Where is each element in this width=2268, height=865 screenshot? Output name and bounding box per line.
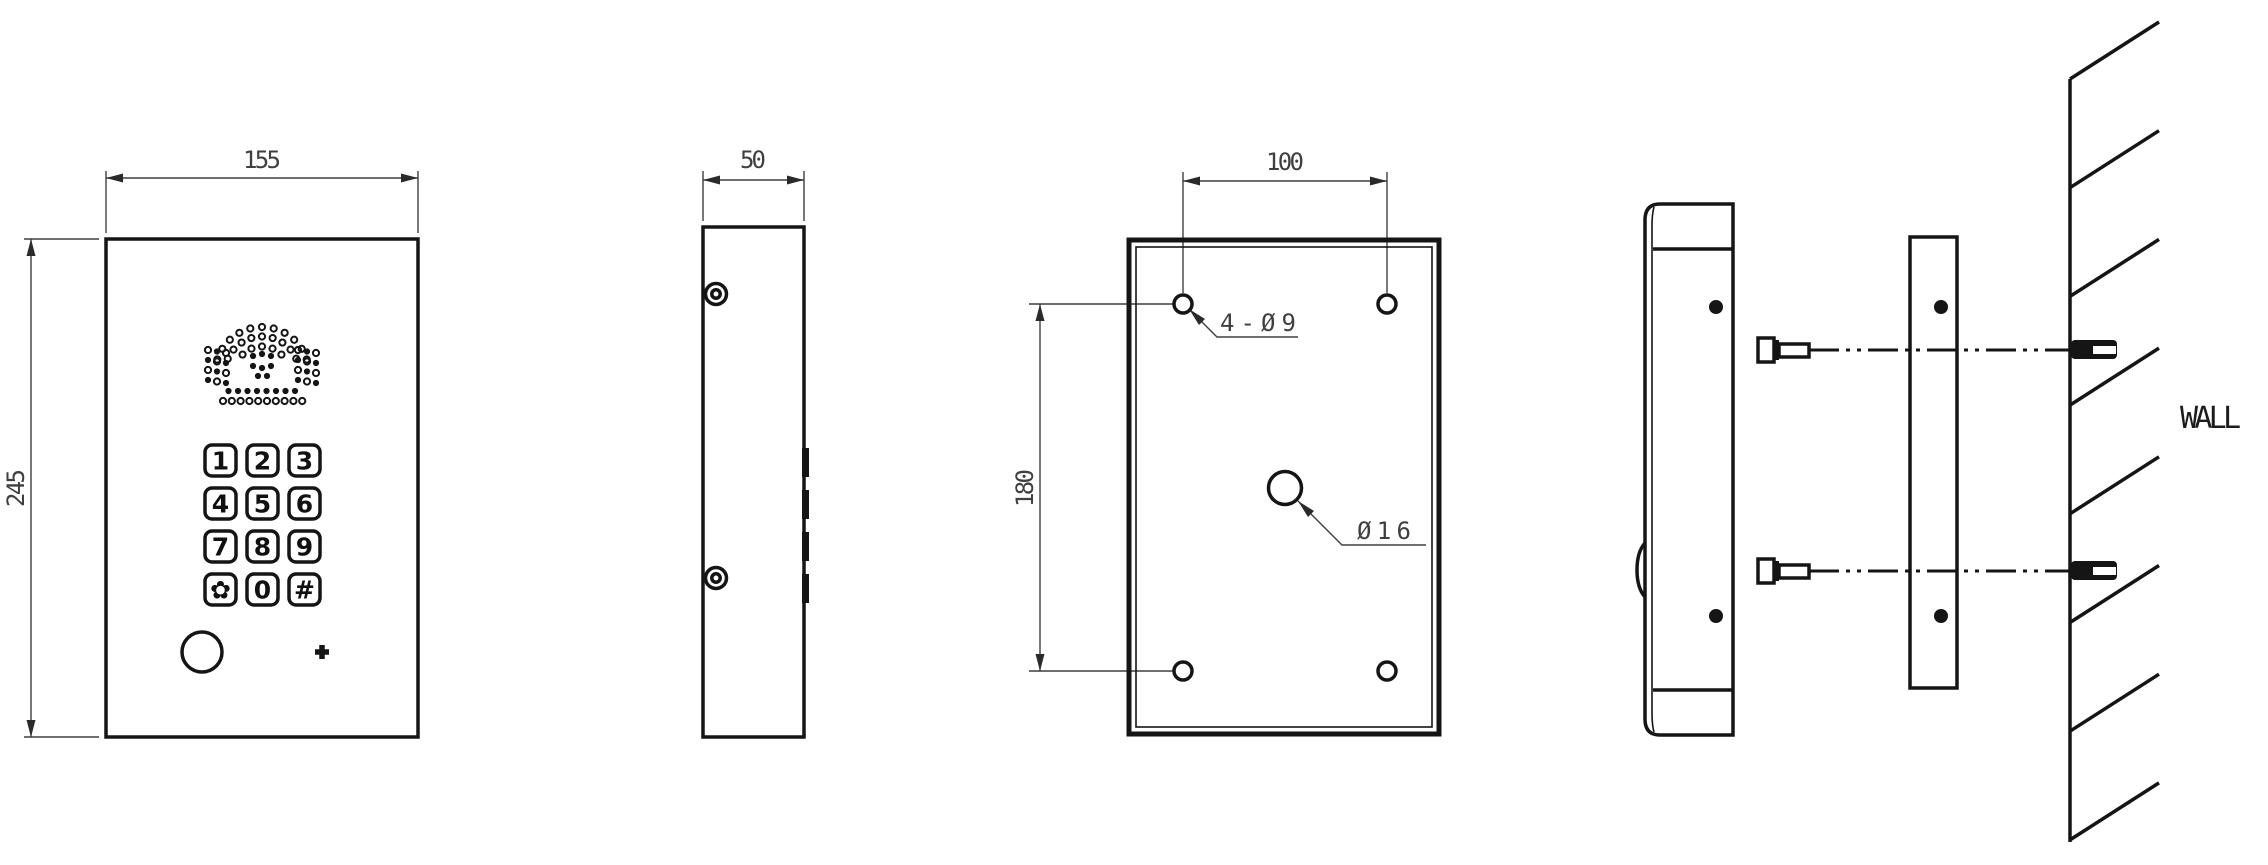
keypad-key-5: 5 <box>247 488 278 519</box>
bolt-shaft <box>1779 565 1809 578</box>
grille-dot <box>248 345 254 351</box>
corner-holes-label: 4-Ø9 <box>1220 309 1296 337</box>
grille-dot <box>304 358 310 364</box>
installation-view: WALL <box>1637 22 2240 842</box>
anchor-slot <box>2093 346 2116 354</box>
keypad-key-1: 1 <box>205 445 236 476</box>
arrowhead-icon <box>1036 304 1045 321</box>
dim-label-width: 155 <box>243 146 281 174</box>
grille-dot <box>273 388 279 394</box>
grille-dot <box>268 363 274 369</box>
arrowhead-icon <box>1036 654 1045 671</box>
dimension-hole-spacing-180: 180 <box>1011 304 1174 671</box>
device-outline <box>1645 204 1733 735</box>
grille-dot <box>291 337 297 343</box>
cable-hole <box>1269 472 1302 505</box>
bracket-hole <box>1934 609 1948 623</box>
side-screw <box>706 568 727 589</box>
grille-dot <box>214 368 220 374</box>
grille-dot <box>304 368 310 374</box>
grille-dot <box>313 360 319 366</box>
bracket-hole <box>1934 300 1948 314</box>
grille-dot <box>259 343 265 349</box>
keypad-bump <box>802 490 809 519</box>
leader-corner-holes: 4-Ø9 <box>1189 309 1298 337</box>
keypad-bump <box>802 448 809 477</box>
grille-dot <box>244 388 250 394</box>
grille-dot <box>295 367 301 373</box>
arrowhead-icon <box>1183 177 1200 186</box>
arrowhead-icon <box>27 239 36 256</box>
grille-dot <box>295 357 301 363</box>
grille-dot <box>214 358 220 364</box>
wall: WALL <box>2070 22 2240 842</box>
arrowhead-icon <box>401 174 418 183</box>
faceplate-edge <box>1652 207 1654 732</box>
grille-dot <box>278 351 284 357</box>
keypad-key-0: 0 <box>247 574 278 605</box>
dim-label-hole-spacing-v: 180 <box>1011 469 1039 507</box>
dimension-depth-50: 50 <box>703 146 804 221</box>
dimension-width-155: 155 <box>106 146 418 233</box>
hatch-line <box>2070 457 2159 514</box>
keypad-key-9: 9 <box>289 531 320 562</box>
side-view: 50 <box>703 146 809 737</box>
mounting-bolt <box>1758 559 1809 583</box>
dim-label-depth: 50 <box>740 146 766 174</box>
grille-dot <box>270 335 276 341</box>
grille-dot <box>264 398 270 404</box>
grille-dot <box>264 373 270 379</box>
anchor-slot <box>2093 567 2116 575</box>
key-label: 5 <box>254 490 271 519</box>
device-profile <box>1637 204 1733 735</box>
mounting-hole <box>1378 295 1396 313</box>
grille-dot <box>295 377 301 383</box>
keypad-bump <box>802 574 809 603</box>
dimension-hole-spacing-100: 100 <box>1183 148 1387 293</box>
bolt-shaft <box>1779 344 1809 357</box>
grille-dot <box>205 367 211 373</box>
dim-label-height: 245 <box>2 469 30 507</box>
grille-dot <box>263 388 269 394</box>
side-screw <box>706 284 727 305</box>
keypad-key-7: 7 <box>205 531 236 562</box>
grille-dot <box>259 351 265 357</box>
wall-anchor <box>2071 561 2117 580</box>
grille-dot <box>235 388 241 394</box>
wall-anchor <box>2071 340 2117 359</box>
wall-hatching <box>2070 22 2159 840</box>
grille-dot <box>259 333 265 339</box>
keypad-key-3: 3 <box>289 445 320 476</box>
grille-dot <box>223 370 229 376</box>
bolt-head <box>1758 559 1774 583</box>
grille-dot <box>254 388 260 394</box>
keypad: 123456789✿0# <box>205 445 320 605</box>
grille-dot <box>313 370 319 376</box>
grille-dot <box>214 378 220 384</box>
mounting-bracket <box>1910 237 1957 688</box>
bracket-outline <box>1910 237 1957 688</box>
arrowhead-icon <box>27 720 36 737</box>
grille-dot <box>223 380 229 386</box>
grille-dot <box>304 378 310 384</box>
keypad-key-✿: ✿ <box>205 574 236 605</box>
grille-dot <box>239 351 245 357</box>
keypad-key-4: 4 <box>205 488 236 519</box>
mounting-bolt <box>1758 338 1809 362</box>
grille-dot <box>205 347 211 353</box>
bolt-head <box>1758 338 1774 362</box>
grille-dot <box>273 398 279 404</box>
keypad-key-6: 6 <box>289 488 320 519</box>
arrowhead-icon <box>787 176 804 185</box>
key-label: 2 <box>254 447 271 476</box>
call-button <box>182 632 222 672</box>
grille-dot <box>250 363 256 369</box>
back-view: 100 180 4-Ø9 Ø16 <box>1011 148 1439 734</box>
grille-dot <box>246 398 252 404</box>
grille-dot <box>248 335 254 341</box>
keypad-bump <box>802 532 809 561</box>
grille-dot <box>255 398 261 404</box>
grille-dot <box>313 380 319 386</box>
key-label: 4 <box>212 490 229 519</box>
grille-dot <box>238 339 244 345</box>
grille-dot <box>259 324 265 330</box>
grille-dot <box>220 398 226 404</box>
key-label: 1 <box>212 447 229 476</box>
grille-dot <box>282 388 288 394</box>
grille-dot <box>225 388 231 394</box>
keypad-key-2: 2 <box>247 445 278 476</box>
grille-dot <box>304 348 310 354</box>
key-label: ✿ <box>210 576 231 605</box>
key-label: 6 <box>296 490 313 519</box>
grille-dot <box>299 398 305 404</box>
grille-dot <box>205 357 211 363</box>
wall-label: WALL <box>2180 401 2240 436</box>
keypad-key-8: 8 <box>247 531 278 562</box>
hatch-line <box>2070 783 2159 840</box>
grille-dot <box>230 347 236 353</box>
grille-dot <box>290 398 296 404</box>
grille-dot <box>227 337 233 343</box>
hatch-line <box>2070 239 2159 296</box>
technical-drawing-canvas: 155 245 123456789✿0# 50 <box>0 0 2268 865</box>
grille-dot <box>255 373 261 379</box>
key-label: 7 <box>212 533 229 562</box>
key-label: 0 <box>254 576 271 605</box>
grille-dot <box>236 330 242 336</box>
grille-dot <box>279 339 285 345</box>
arrowhead-icon <box>703 176 720 185</box>
leader-center-hole: Ø16 <box>1298 501 1426 545</box>
grille-dot <box>214 348 220 354</box>
dim-label-hole-spacing-h: 100 <box>1266 148 1304 176</box>
key-label: 8 <box>254 533 271 562</box>
grille-dot <box>269 345 275 351</box>
hatch-line <box>2070 22 2159 79</box>
mounting-hole <box>1378 662 1396 680</box>
device-hole <box>1709 300 1723 314</box>
grille-dot <box>282 398 288 404</box>
grille-dot <box>250 353 256 359</box>
key-label: # <box>294 576 315 605</box>
mic-hole-icon <box>315 645 329 659</box>
key-label: 3 <box>296 447 313 476</box>
grille-dot <box>282 330 288 336</box>
grille-dot <box>268 353 274 359</box>
grille-dot <box>223 360 229 366</box>
front-view: 155 245 123456789✿0# <box>2 146 418 737</box>
mounting-hole <box>1174 662 1192 680</box>
grille-dot <box>205 377 211 383</box>
dimension-height-245: 245 <box>2 239 99 737</box>
grille-dot <box>238 398 244 404</box>
grille-dot <box>271 325 277 331</box>
center-hole-label: Ø16 <box>1357 517 1411 545</box>
grille-dot <box>287 347 293 353</box>
speaker-grille-icon <box>205 324 319 404</box>
arrowhead-icon <box>106 174 123 183</box>
grille-dot <box>229 398 235 404</box>
key-label: 9 <box>296 533 313 562</box>
hatch-line <box>2070 674 2159 731</box>
grille-dot <box>292 388 298 394</box>
grille-dot <box>223 350 229 356</box>
hatch-line <box>2070 131 2159 188</box>
grille-dot <box>259 365 265 371</box>
arrowhead-icon <box>1370 177 1387 186</box>
device-hole <box>1709 609 1723 623</box>
keypad-key-#: # <box>289 574 320 605</box>
grille-dot <box>247 325 253 331</box>
grille-dot <box>313 350 319 356</box>
mounting-hole <box>1174 295 1192 313</box>
